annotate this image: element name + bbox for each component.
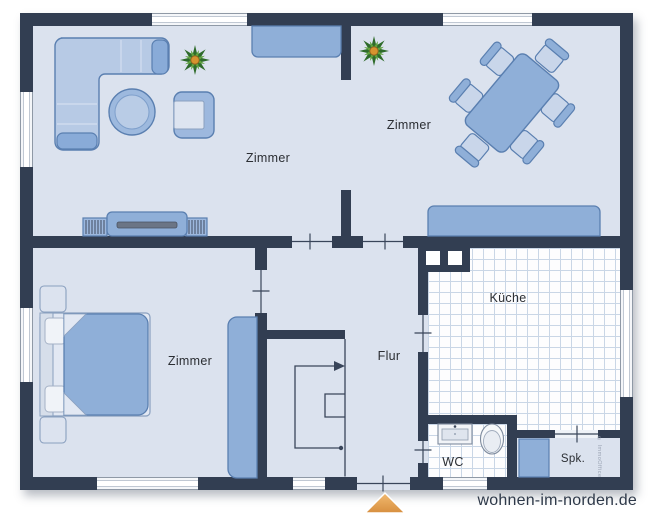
dining-set	[425, 13, 600, 193]
pillow	[45, 386, 66, 412]
plant	[180, 45, 210, 75]
door-opening	[415, 315, 432, 352]
watermark: wohnen-im-norden.de	[478, 492, 637, 510]
room-label-kitchen: Küche	[490, 291, 527, 305]
door-opening	[253, 270, 270, 313]
nightstand	[40, 286, 66, 312]
nightstand	[40, 417, 66, 443]
sideboard	[428, 206, 600, 236]
corner-sofa	[55, 38, 169, 150]
door-opening	[363, 234, 403, 250]
armchair	[174, 92, 214, 138]
side-watermark: © ImmoOffice	[596, 436, 602, 482]
door-opening	[415, 441, 432, 463]
door-opening	[555, 426, 598, 443]
stair-direction-arrow	[334, 361, 345, 371]
sideboard	[252, 26, 341, 57]
staircase	[295, 339, 345, 477]
plant	[359, 36, 389, 66]
room-label-dining: Zimmer	[387, 118, 431, 132]
washbasin	[438, 424, 472, 444]
room-label-living: Zimmer	[246, 151, 290, 165]
tv-lowboard	[83, 212, 207, 236]
wardrobe	[228, 317, 257, 478]
room-label-pantry: Spk.	[561, 453, 585, 465]
double-bed	[40, 313, 150, 416]
coffee-table	[109, 89, 155, 135]
blanket	[64, 314, 148, 415]
door-opening	[292, 234, 332, 250]
room-label-bedroom: Zimmer	[168, 354, 212, 368]
pillow	[45, 318, 66, 344]
room-label-hall: Flur	[378, 349, 401, 363]
floor-plan: Zimmer Zimmer Zimmer Flur Küche WC Spk. …	[0, 0, 650, 518]
toilet	[481, 424, 504, 454]
furniture-layer	[0, 0, 650, 518]
stair-walk-line	[295, 366, 341, 448]
entrance-arrow	[365, 493, 405, 513]
room-label-wc: WC	[442, 455, 463, 469]
entrance-opening	[357, 476, 410, 492]
pantry-cabinet	[519, 439, 549, 477]
